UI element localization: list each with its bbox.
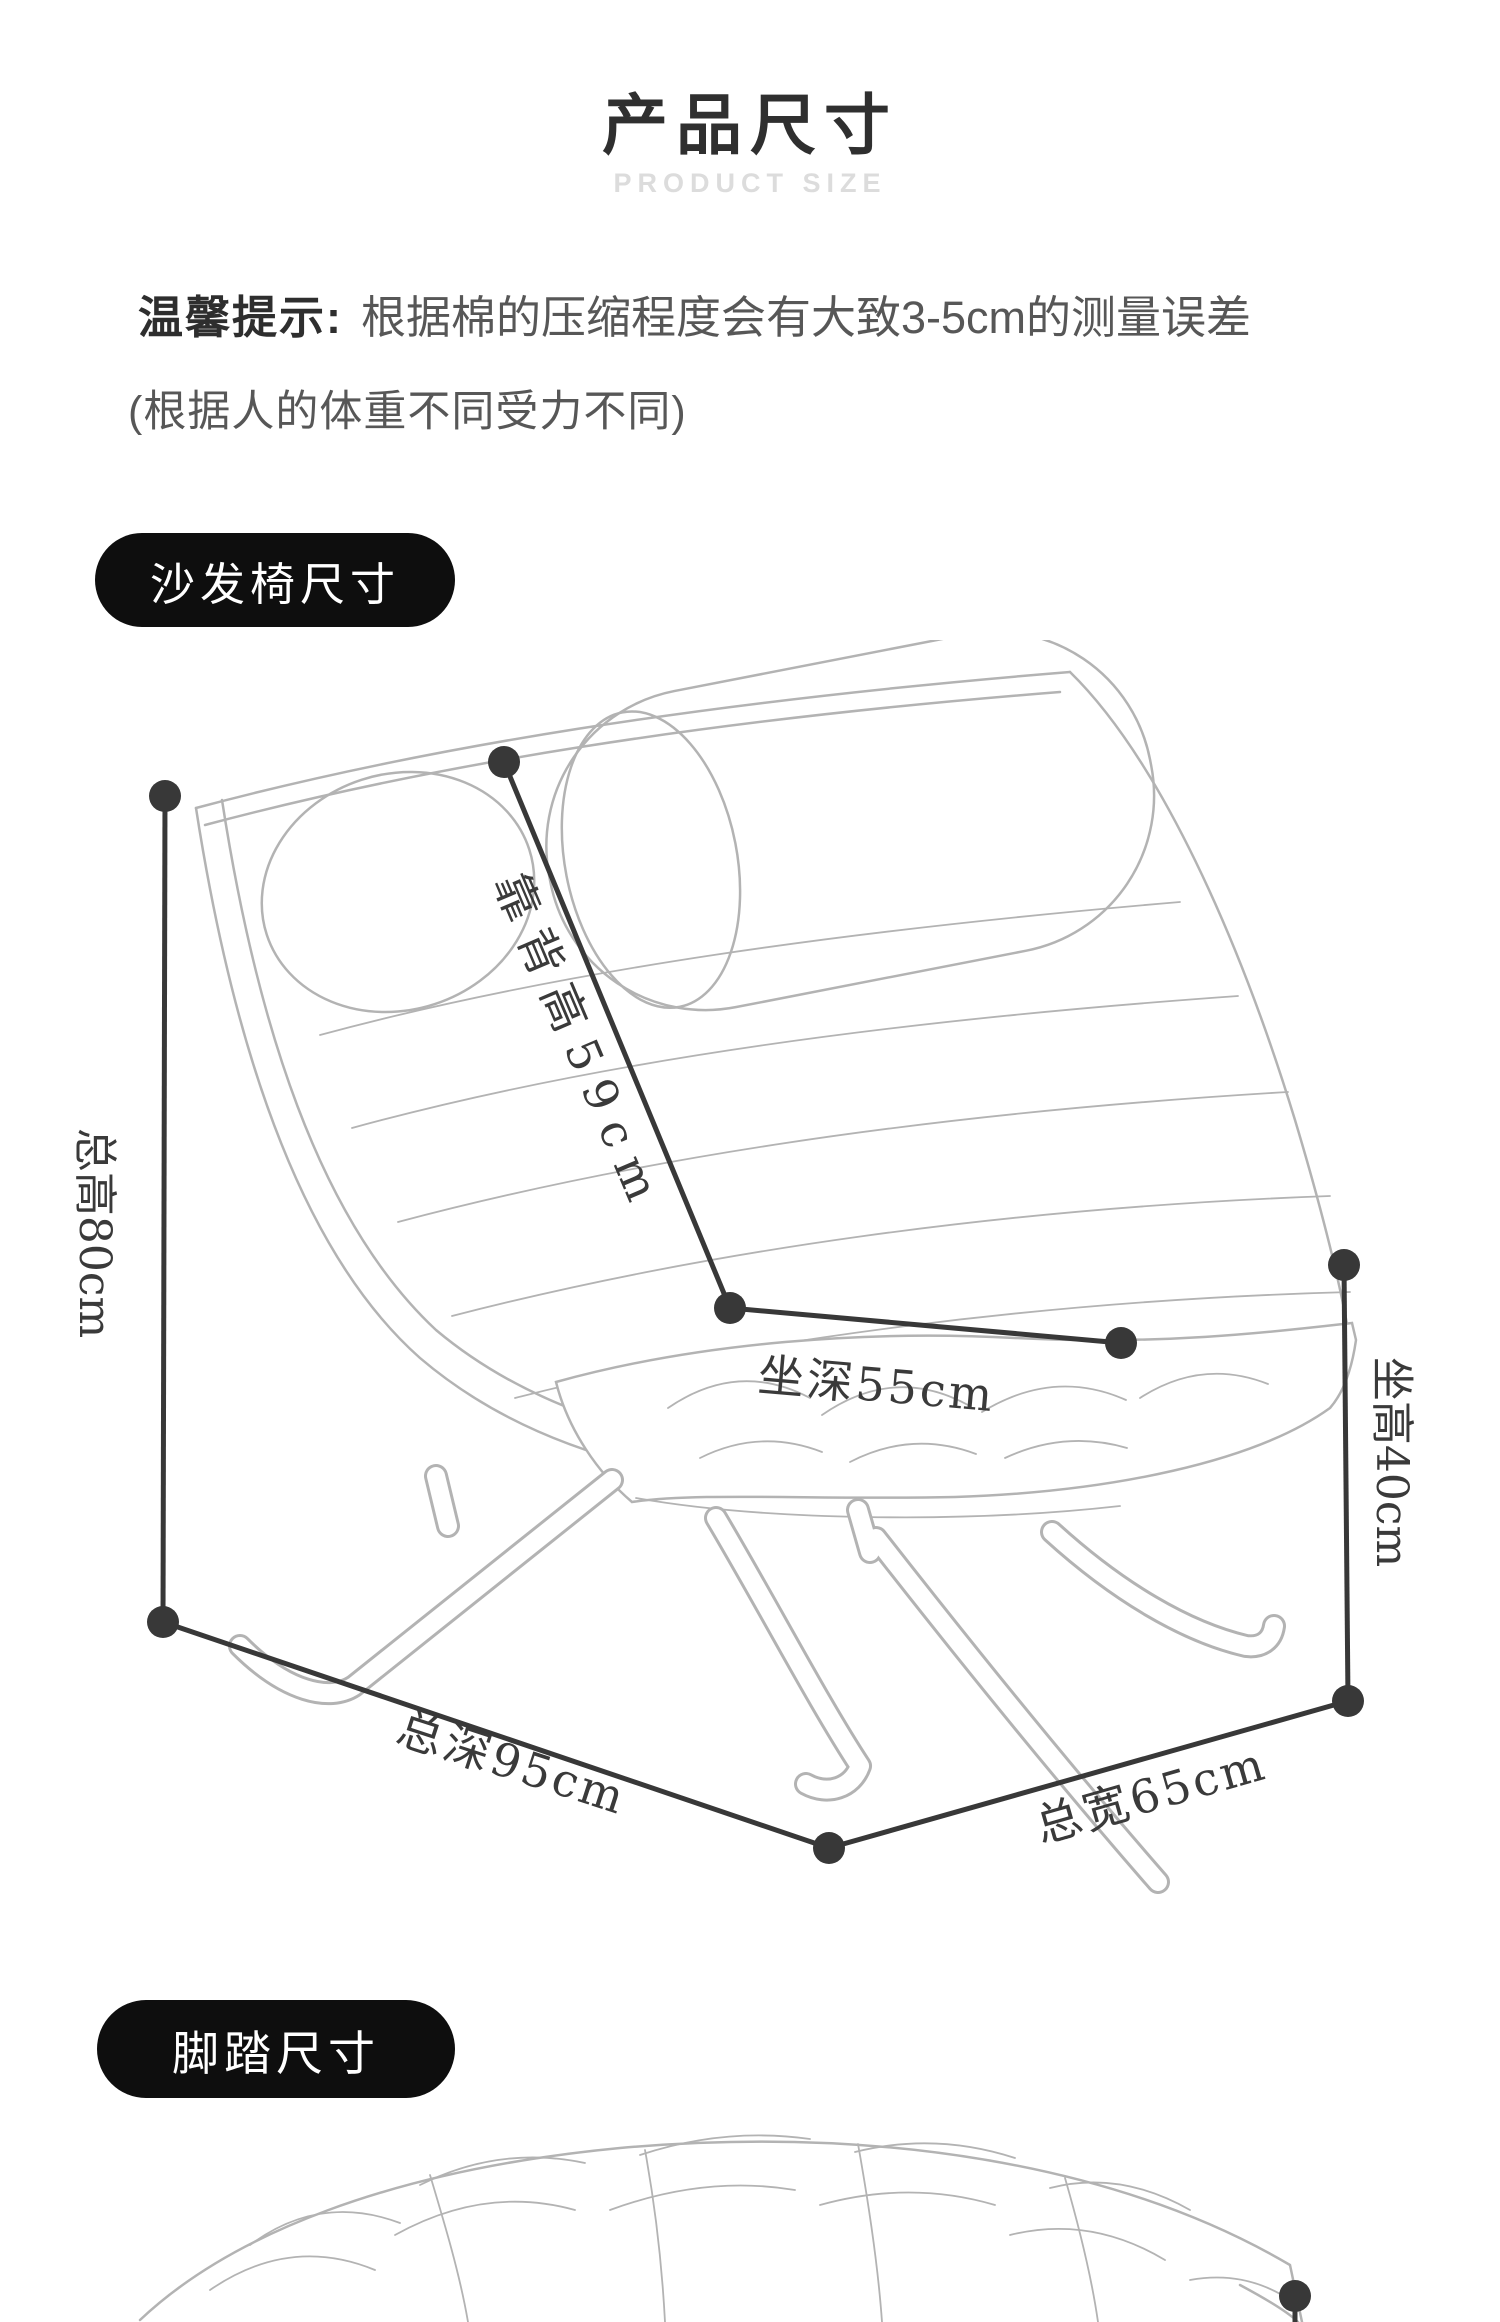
footstool-dimension-dot: [1279, 2280, 1311, 2312]
notice-label: 温馨提示:: [138, 292, 343, 343]
backrest-right-edge: [1070, 672, 1350, 1342]
notice-text: 根据棉的压缩程度会有大致3-5cm的测量误差: [361, 292, 1251, 343]
footstool-top-edge: [140, 2142, 1302, 2322]
chair-line-art: [196, 640, 1356, 1882]
footstool-line-art: [140, 2135, 1302, 2322]
notice-line: 温馨提示:根据棉的压缩程度会有大致3-5cm的测量误差: [138, 281, 1438, 346]
footstool-size-section-label: 脚踏尺寸: [97, 2000, 455, 2098]
page-title: 产品尺寸: [0, 72, 1500, 168]
chair-diagram: [0, 640, 1500, 1970]
backrest-left-frame: [196, 808, 650, 1468]
footstool-tuft-seams: [210, 2135, 1290, 2322]
headrest-pillow: [230, 640, 1181, 1047]
page-subtitle: PRODUCT SIZE: [0, 168, 1500, 199]
backrest-channel-seams: [320, 902, 1350, 1398]
total-height-line: [163, 796, 165, 1622]
dimension-label-seat-height: 坐高40cm: [1364, 1357, 1428, 1567]
chair-size-section-label: 沙发椅尺寸: [95, 533, 455, 627]
product-size-page: 产品尺寸 PRODUCT SIZE 温馨提示:根据棉的压缩程度会有大致3-5cm…: [0, 0, 1500, 2322]
back-height-line: [504, 762, 730, 1308]
footstool-diagram: [0, 2130, 1500, 2322]
dimension-label-total-height: 总高80cm: [67, 1128, 131, 1338]
notice-line2: (根据人的体重不同受力不同): [128, 377, 1328, 439]
